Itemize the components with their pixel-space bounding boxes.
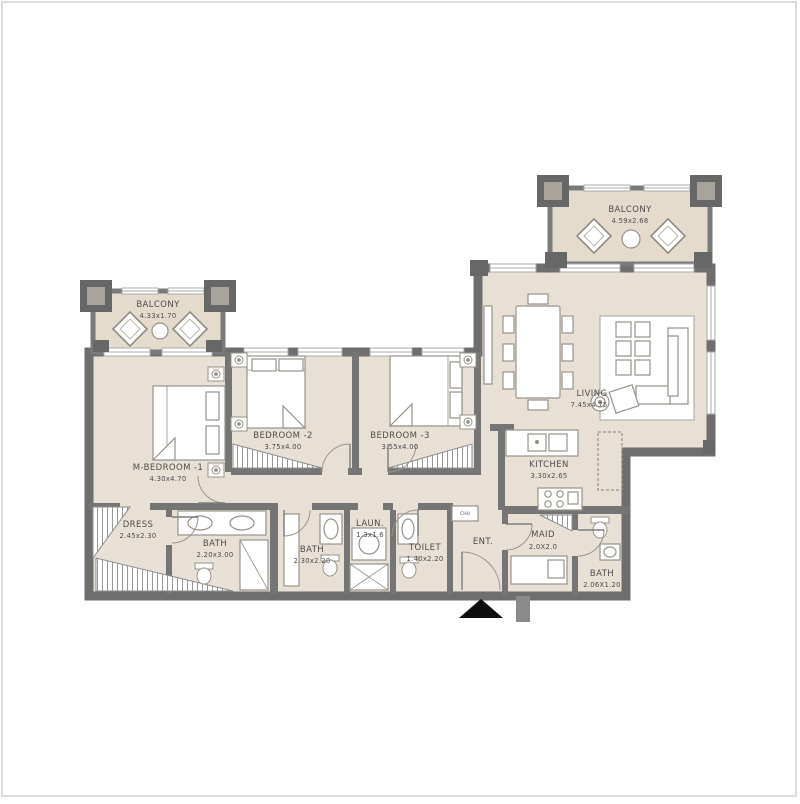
image-border	[1, 1, 797, 797]
floorplan-page: BALCONY 4.59x2.68 BALCONY 4.33x1.70 M-BE…	[0, 0, 800, 800]
